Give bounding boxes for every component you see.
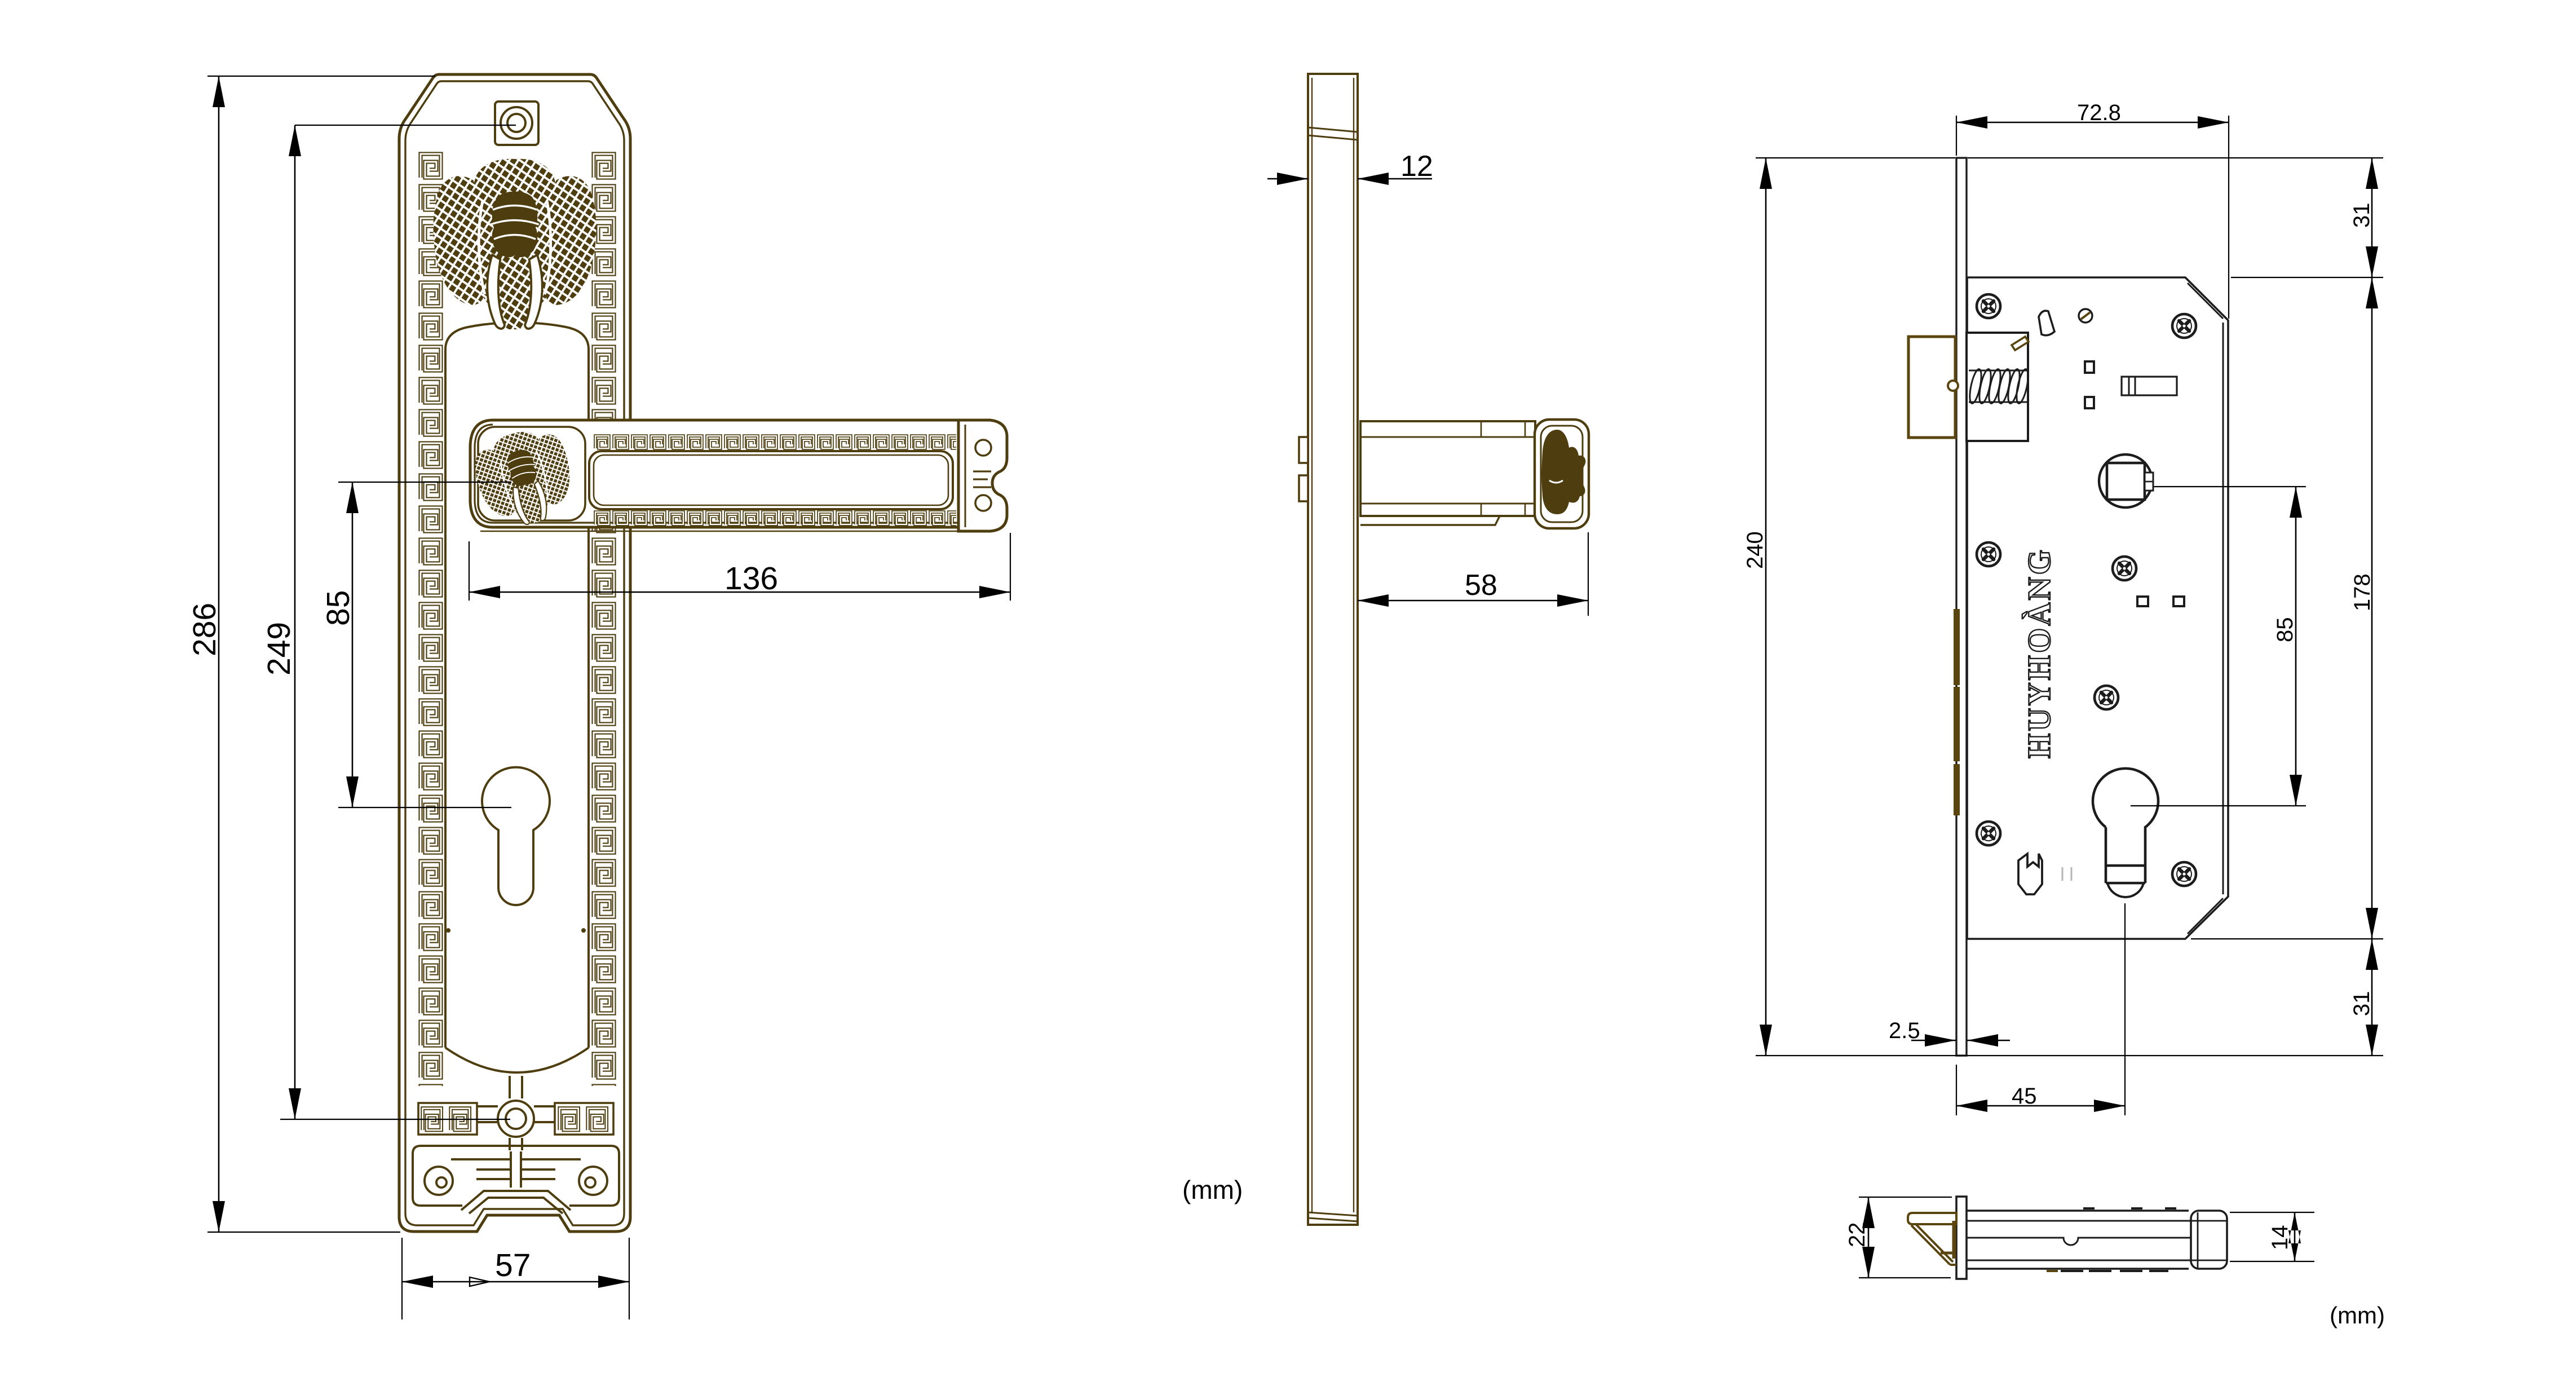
- svg-text:136: 136: [724, 561, 778, 597]
- svg-text:178: 178: [2350, 573, 2375, 611]
- svg-text:31: 31: [2349, 991, 2374, 1017]
- svg-text:(mm): (mm): [1182, 1175, 1243, 1204]
- svg-text:85: 85: [320, 590, 356, 626]
- svg-text:2.5: 2.5: [1889, 1018, 1920, 1043]
- svg-text:57: 57: [495, 1247, 531, 1283]
- svg-text:58: 58: [1465, 569, 1497, 602]
- svg-text:31: 31: [2349, 203, 2374, 228]
- svg-text:22: 22: [1845, 1223, 1870, 1248]
- svg-text:72.8: 72.8: [2077, 100, 2121, 125]
- svg-text:HUYHOÀNG: HUYHOÀNG: [2022, 548, 2057, 758]
- svg-text:286: 286: [187, 603, 223, 656]
- svg-text:45: 45: [2012, 1084, 2037, 1109]
- svg-text:249: 249: [261, 622, 297, 676]
- svg-text:14: 14: [2268, 1225, 2292, 1251]
- svg-text:240: 240: [1743, 531, 1768, 569]
- svg-text:(mm): (mm): [2330, 1302, 2385, 1329]
- svg-text:85: 85: [2273, 617, 2297, 643]
- svg-text:12: 12: [1400, 150, 1433, 183]
